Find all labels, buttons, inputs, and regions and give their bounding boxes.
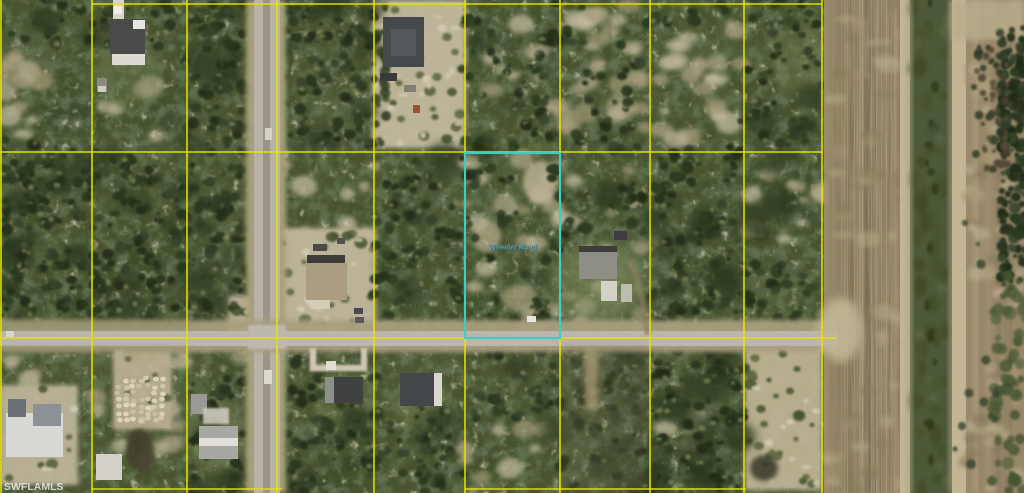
svg-text:Wheeler Road: Wheeler Road bbox=[489, 242, 537, 251]
svg-text:SWFLAMLS: SWFLAMLS bbox=[4, 481, 64, 493]
